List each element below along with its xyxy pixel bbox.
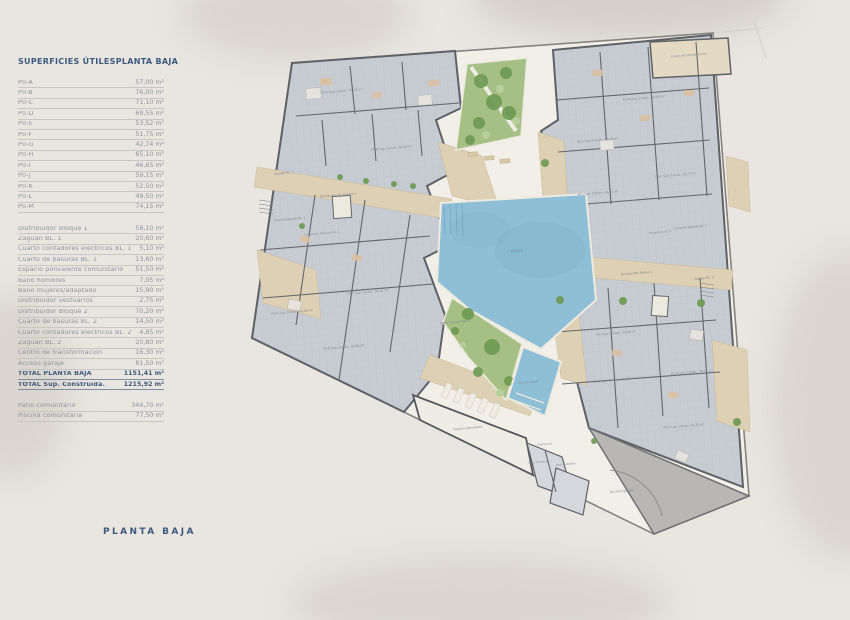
row-value: 65,10 m² [135,152,164,159]
table-row: Cuarto contadores eléctricos BL. 2 4,85 … [18,328,164,338]
row-value: 344,70 m² [131,403,164,410]
table-row: Acceso garaje 81,50 m² [18,359,164,369]
row-value: 77,50 m² [135,413,164,420]
table-row: P0-F 51,75 m² [18,130,164,140]
row-label: Baño hombres [18,278,65,285]
row-value: 20,60 m² [135,236,164,243]
row-value: 4,85 m² [139,330,164,337]
table-row: Patio comunitario 344,70 m² [18,401,164,411]
row-value: 76,00 m² [135,90,164,97]
outdoor-rows: Patio comunitario 344,70 m² Piscina comu… [18,401,164,422]
row-value: 51,75 m² [135,132,164,139]
row-label: Distribuidor vestuarios [18,298,93,305]
table-row: Distribuidor vestuarios 2,75 m² [18,297,164,307]
row-value: 16,30 m² [135,350,164,357]
table-row: Cuarto de basuras BL. 1 13,60 m² [18,255,164,265]
row-value: 7,05 m² [139,278,164,285]
row-value: 15,90 m² [135,288,164,295]
units-rows: P0-A 57,00 m² P0-B 76,00 m² P0-C 71,10 m… [18,78,164,213]
commons-rows: Distribuidor Bloque 1 58,10 m² Zaguán BL… [18,224,164,390]
row-value: 5,10 m² [139,246,164,253]
row-value: 71,10 m² [135,100,164,107]
row-value: 46,65 m² [135,163,164,170]
table-row: Piscina comunitaria 77,50 m² [18,412,164,422]
row-value: 81,50 m² [135,361,164,368]
table-row: P0-A 57,00 m² [18,78,164,88]
table-row: P0-K 52,50 m² [18,182,164,192]
row-value: 49,50 m² [135,194,164,201]
table-row: P0-L 49,50 m² [18,192,164,202]
table-row: TOTAL PLANTA BAJA 1151,41 m² [18,370,164,380]
table-row: Zaguán BL. 1 20,60 m² [18,234,164,244]
row-label: Zaguán BL. 2 [18,340,62,347]
row-value: 42,74 m² [135,142,164,149]
row-label: Patio comunitario [18,403,76,410]
table-row: P0-H 65,10 m² [18,151,164,161]
table-row: P0-G 42,74 m² [18,140,164,150]
areas-table: SUPERFICIES ÚTILES PLANTA BAJA P0-A 57,0… [18,57,164,422]
transformer-room [650,38,731,78]
page: P0-A Sup. Constr.: 67,65 m²P0-B Sup. Con… [0,0,850,620]
table-row: Baño mujeres/adaptado 15,90 m² [18,286,164,296]
row-label: P0-I [18,163,31,170]
table-row: Distribuidor Bloque 2 70,20 m² [18,307,164,317]
table-row: Cuarto contadores eléctricos BL. 1 5,10 … [18,245,164,255]
row-label: P0-J [18,173,31,180]
table-title: SUPERFICIES ÚTILES [18,57,116,66]
table-row: P0-C 71,10 m² [18,99,164,109]
row-value: 1215,92 m² [124,382,164,389]
row-label: P0-E [18,121,33,128]
row-value: 13,60 m² [135,257,164,264]
row-label: Piscina comunitaria [18,413,82,420]
table-row: Baño hombres 7,05 m² [18,276,164,286]
row-label: P0-F [18,132,32,139]
row-label: P0-D [18,111,34,118]
table-row: P0-I 46,65 m² [18,161,164,171]
row-value: 74,15 m² [135,204,164,211]
row-label: Baño mujeres/adaptado [18,288,97,295]
row-label: Espacio polivalente comunitario [18,267,123,274]
row-label: P0-C [18,100,33,107]
row-value: 70,20 m² [135,309,164,316]
table-row: Distribuidor Bloque 1 58,10 m² [18,224,164,234]
table-row: P0-J 59,15 m² [18,172,164,182]
table-row: P0-B 76,00 m² [18,88,164,98]
table-row: P0-D 69,55 m² [18,109,164,119]
row-label: Zaguán BL. 1 [18,236,62,243]
row-label: P0-B [18,90,33,97]
row-label: P0-M [18,204,34,211]
table-row: Espacio polivalente comunitario 51,50 m² [18,266,164,276]
row-value: 57,00 m² [135,80,164,87]
table-subtitle: PLANTA BAJA [116,57,178,66]
row-label: P0-K [18,184,33,191]
row-label: Cuarto de basuras BL. 2 [18,319,97,326]
row-label: P0-L [18,194,32,201]
row-label: P0-A [18,80,33,87]
row-label: TOTAL Sup. Construida. [18,382,105,389]
row-value: 53,52 m² [135,121,164,128]
row-label: Acceso garaje [18,361,64,368]
row-value: 52,50 m² [135,184,164,191]
row-value: 14,50 m² [135,319,164,326]
row-label: Centro de transformación [18,350,102,357]
table-row: TOTAL Sup. Construida. 1215,92 m² [18,380,164,390]
row-value: 59,15 m² [135,173,164,180]
row-value: 2,75 m² [139,298,164,305]
row-label: Distribuidor Bloque 2 [18,309,88,316]
row-label: Cuarto contadores eléctricos BL. 1 [18,246,132,253]
table-row: P0-E 53,52 m² [18,120,164,130]
row-label: Distribuidor Bloque 1 [18,226,88,233]
row-label: P0-G [18,142,34,149]
row-label: P0-H [18,152,33,159]
table-row: Cuarto de basuras BL. 2 14,50 m² [18,318,164,328]
row-label: Cuarto de basuras BL. 1 [18,257,97,264]
plan-title: PLANTA BAJA [103,527,196,537]
table-row: P0-M 74,15 m² [18,203,164,213]
row-label: Cuarto contadores eléctricos BL. 2 [18,330,132,337]
table-row: Zaguán BL. 2 20,80 m² [18,338,164,348]
row-value: 58,10 m² [135,226,164,233]
row-value: 20,80 m² [135,340,164,347]
table-header: SUPERFICIES ÚTILES PLANTA BAJA [18,57,164,66]
table-row: Centro de transformación 16,30 m² [18,349,164,359]
row-value: 69,55 m² [135,111,164,118]
row-label: TOTAL PLANTA BAJA [18,371,92,378]
row-value: 1151,41 m² [124,371,164,378]
row-value: 51,50 m² [135,267,164,274]
